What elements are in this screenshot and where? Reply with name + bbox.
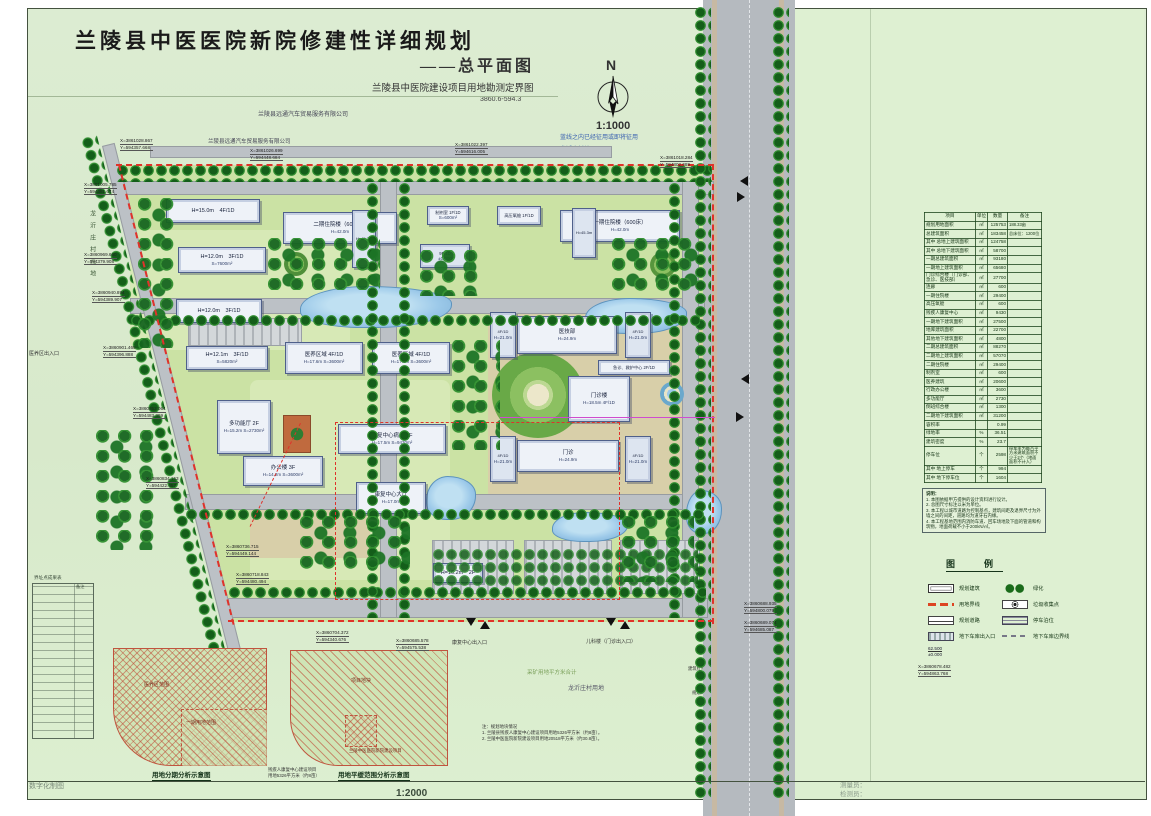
indicator-row: 总建筑面积 ㎡ 183458 总床位：1200位 [925,230,1042,239]
indicators-header-row: 项目 单位 数量 备注 [925,213,1042,222]
field-line [870,9,871,781]
legend-item: 规划建筑 [928,580,998,596]
coord-x: X=3861005.785 [84,182,117,189]
building-sub: H=15.2m S=2730m² [224,428,265,433]
survey-title: 兰陵县中医院建设项目用地勘测定界图 [372,84,534,94]
village-land-label: 龙沂庄村用地 [568,686,604,693]
indicator-unit: ㎡ [975,238,987,247]
indicator-qty: 183458 [988,230,1008,239]
indicator-note [1008,386,1042,395]
indicator-row: 停车位 个 2598 停车率为每百平方米建筑面积不少于2个（地面面积不计入） [925,447,1042,466]
building-label: 急诊、救护中心 2F/1D [613,365,655,370]
mine-land-label: 采矿用地平方米合计 [527,670,577,676]
indicator-unit: ㎡ [975,264,987,273]
indicator-unit: ㎡ [975,412,987,421]
indicator-item: 倒班综合楼 [925,404,976,413]
indicator-unit [975,421,987,430]
building-sub: H=17.6m S=3600m² [391,359,432,364]
building-sub: H=17.6m S=3600m² [304,359,345,364]
note-line: 3. 本工程以城市道路为控制基点，建筑间距及退界尺寸为外墙之间的间距，道路均为道… [926,508,1042,519]
entrance-label-pediatric: 儿科楼（门诊出入口） [586,640,636,646]
indicator-unit: ㎡ [975,247,987,256]
inset-left-title: 用地分期分析示意图 [152,772,211,781]
boundary-table-header: 备注 [76,585,84,590]
coord-x: X=3861018.284 [660,155,693,162]
indicator-qty: 29400 [988,292,1008,301]
indicator-qty: 0.99 [988,421,1008,430]
indicator-row: 容积率 0.99 [925,421,1042,430]
coord-y: Y=594483.399 [133,413,166,420]
coordinate-callout: X=3860736.715Y=594449.144 [226,544,259,557]
coord-y: Y=594381.674 [84,189,117,196]
entrance-arrow [620,616,630,629]
indicator-unit: ㎡ [975,343,987,352]
coord-x: X=3860852.064 [133,406,166,413]
indicator-row: 其中 地上停车 个 994 [925,465,1042,474]
coordinate-callout: X=3860704.372Y=594340.676 [316,630,349,643]
legend-label: 地下车库出入口 [959,633,995,640]
coord-y: Y=594480.494 [236,579,269,586]
indicator-item: 二期总建筑面积 [925,343,976,352]
inset-rehab-parcel [345,715,377,747]
indicator-row: 一期住院楼 ㎡ 29400 [925,292,1042,301]
plan-note-line: 1. 兰陵县残疾人康复中心建设项目用地5326平方米（约8亩）。 [482,730,622,736]
indicator-note [1008,404,1042,413]
boundary-east [712,164,714,624]
indicator-qty: 2730 [988,395,1008,404]
entrance-arrow [735,176,748,186]
indicator-row: 二期住院楼 ㎡ 29400 [925,361,1042,370]
north-label: N [606,58,616,73]
indicator-unit: ㎡ [975,326,987,335]
indicator-note [1008,369,1042,378]
coord-y: Y=594685.087 [744,627,777,634]
inset-label: 医养区范围 [144,683,169,689]
indicator-unit: ㎡ [975,352,987,361]
building-sub: S=600m² [439,215,457,220]
legend-swatch-icon [1002,600,1028,609]
legend-swatch-icon [1002,635,1028,637]
legend-item: 地下车库边界线 [1002,628,1082,644]
legend-swatch-icon [1002,584,1028,593]
coordinate-callout: X=3860689.074Y=594685.087 [744,620,777,633]
inset-right-title: 用地平缓范围分析示意图 [338,772,410,781]
coordinate-callout: X=3860718.843Y=594480.494 [236,572,269,585]
coord-y: Y=594800.079 [744,608,777,615]
indicator-note [1008,465,1042,474]
legend-swatch-icon [928,584,954,593]
coordinate-callout: X=3860852.064Y=594483.399 [133,406,166,419]
indicator-item: 医养建筑 [925,378,976,387]
building-sub: H=42.0m [331,229,349,234]
coord-y: Y=594616.005 [455,149,488,156]
legend-item: 规划道路 [928,612,998,628]
indicator-note [1008,421,1042,430]
indicator-qty: 20600 [988,378,1008,387]
indicator-row: 多功能厅 ㎡ 2730 [925,395,1042,404]
indicator-item: 其中 地上停车 [925,465,976,474]
indicator-note [1008,238,1042,247]
indicator-row: 其中 总地下建筑面积 ㎡ 58700 [925,247,1042,256]
legend-label: 用地界线 [959,601,980,608]
indicator-item: 其中 总地下建筑面积 [925,247,976,256]
inset-phasing-diagram: 医养区范围 一期用地范围 [113,648,267,766]
tree-row [694,6,711,798]
coordinate-callout: X=3860901.469Y=594396.888 [103,345,136,358]
plan-note-line: 2. 兰陵中医医院新院建设项目用地20518平方米（约30.8亩）。 [482,736,622,742]
building-label: 多功能厅 2F [229,421,259,428]
legend-item: 垃圾收集点 [1002,596,1082,612]
indicator-note [1008,283,1042,292]
coord-y: Y=594448.684 [250,155,283,162]
indicator-row: 连廊 ㎡ 600 [925,283,1042,292]
entrance-arrow [736,412,749,422]
indicator-item: 停车位 [925,447,976,466]
tree-cluster [96,430,154,550]
coord-x: X=3860678.482 [918,664,951,671]
indicator-item: 一期地下建筑面积 [925,318,976,327]
indicator-row: 规划用地面积 ㎡ 125753 188.33亩 [925,221,1042,230]
indicator-note [1008,255,1042,264]
indicator-qty: 27500 [988,318,1008,327]
boundary-top [116,164,714,166]
indicator-item: 连廊 [925,283,976,292]
indicator-note [1008,318,1042,327]
indicator-qty: 65680 [988,264,1008,273]
indicator-row: 制剂室 ㎡ 600 [925,369,1042,378]
indicator-note [1008,264,1042,273]
indicator-row: 门诊综合楼（门诊部、急诊、医技部） ㎡ 27700 [925,273,1042,284]
indicator-unit: ㎡ [975,309,987,318]
indicator-qty: 600 [988,369,1008,378]
cad-credit: 数字化制图 [29,783,64,791]
coord-y: Y=594379.908 [84,259,117,266]
col-unit: 单位 [975,213,987,222]
building-emergency: 急诊、救护中心 2F/1D [598,360,670,375]
indicator-note [1008,429,1042,438]
inset-leader-label2: 用地5326平方米（约8亩） [268,774,320,779]
indicator-unit: ㎡ [975,255,987,264]
magenta-line [500,417,715,418]
building-dorm-2: H=12.0m 3F/1DS=7600m² [178,247,266,273]
coordinate-callout: X=3861005.785Y=594381.674 [84,182,117,195]
coord-x: X=3860940.894 [92,290,125,297]
coord-y: Y=594802.689 [660,162,693,169]
indicator-unit: ㎡ [975,292,987,301]
page-subtitle: ——总平面图 [420,58,534,76]
building-eldercare-1: 医养区域 4F/1DH=17.6m S=3600m² [285,342,363,374]
indicator-row: 医养建筑 ㎡ 20600 [925,378,1042,387]
indicator-qty: 2598 [988,447,1008,466]
indicator-item: 规划用地面积 [925,221,976,230]
indicator-note [1008,247,1042,256]
col-note: 备注 [1008,213,1042,222]
indicator-unit: ㎡ [975,300,987,309]
indicator-unit: ㎡ [975,221,987,230]
indicator-qty: 1604 [988,474,1008,483]
col-qty: 数量 [988,213,1008,222]
page-title: 兰陵县中医医院新院修建性详细规划 [75,30,475,53]
building-label: H=15.0m 4F/1D [192,208,235,215]
site-plan-sheet: H=15.0m 4F/1D H=12.0m 3F/1DS=7600m² H=12… [0,0,1151,816]
indicator-item: 行政办公楼 [925,386,976,395]
coord-y: Y=594396.888 [103,352,136,359]
inset-label: 兰陵中医医院新院建设项目 [349,749,402,754]
building-outpatient-hall: 门诊楼H=18.5m 4F/1D [568,376,630,422]
coord-x: X=3860901.469 [103,345,136,352]
indicator-note [1008,361,1042,370]
indicator-item: 绿地率 [925,429,976,438]
indicator-qty: 124758 [988,238,1008,247]
indicator-unit: 个 [975,447,987,466]
legend-label: 规划道路 [959,617,980,624]
plan-note: 注：规划地块情况 1. 兰陵县残疾人康复中心建设项目用地5326平方米（约8亩）… [482,724,622,742]
coordinate-callout: X=3860685.578Y=594575.538 [396,638,429,651]
indicator-row: 高压氧舱 ㎡ 600 [925,300,1042,309]
coord-x: X=3861028.867 [120,138,153,145]
survey-code: 3860.6-594.3 [480,96,521,104]
faint-line [28,96,558,97]
indicator-note [1008,326,1042,335]
indicator-row: 地库建筑面积 ㎡ 22700 [925,326,1042,335]
coord-x: X=3860685.578 [396,638,429,645]
indicator-qty: 93180 [988,255,1008,264]
indicator-item: 二期地下建筑面积 [925,412,976,421]
legend-col-1: 规划建筑 用地界线 规划道路 地下车库出入口 [928,580,998,644]
entrance-arrow [466,618,476,631]
legend-label: 垃圾收集点 [1033,601,1059,608]
building-label: 办公楼 3F [271,465,295,472]
indicator-unit: ㎡ [975,361,987,370]
building-sub: H=24.9m [558,336,576,341]
indicator-qty: 31200 [988,412,1008,421]
coordinate-callout: X=3861018.284Y=594802.689 [660,155,693,168]
elevation-symbol: 62.500 ±0.000 [928,646,942,657]
indicator-row: 倒班综合楼 ㎡ 1300 [925,404,1042,413]
indicator-qty: 29400 [988,361,1008,370]
scale-label: 1:1000 [596,120,630,132]
building-ward-phase1-tower: H=45.3m [572,208,596,258]
building-label: 一期住院楼（600床） [593,220,646,227]
indicator-row: 残疾人康复中心 ㎡ 9430 [925,309,1042,318]
inset-scale: 1:2000 [396,788,427,799]
coordinate-callout: X=3861022.397Y=594616.005 [455,142,488,155]
building-dorm-1: H=15.0m 4F/1D [166,199,260,223]
coordinate-callout: X=3860969.660Y=594379.908 [84,252,117,265]
indicator-item: 残疾人康复中心 [925,309,976,318]
indicator-note [1008,378,1042,387]
tree-row [772,6,789,798]
tree-cluster [268,238,380,290]
indicator-unit: ㎡ [975,318,987,327]
building-label: 高压氧舱 1F/1D [504,213,533,218]
tree-row [130,314,700,326]
building-label: 医技部 [559,329,576,336]
elevation-bottom: ±0.000 [928,652,942,657]
coordinate-callout: X=3860834.153Y=594422.457 [146,476,179,489]
road-centerline [749,0,750,816]
coord-y: Y=594575.538 [396,645,429,652]
indicator-unit: % [975,429,987,438]
coord-x: X=3860718.843 [236,572,269,579]
inset-flat-range-diagram: 项目地块 兰陵中医医院新院建设项目 [290,650,448,766]
rehab-parcel-boundary [335,422,620,600]
coord-x: X=3861026.699 [250,148,283,155]
indicator-item: 二期住院楼 [925,361,976,370]
indicator-unit: ㎡ [975,386,987,395]
indicator-qty: 3600 [988,386,1008,395]
coord-y: Y=594422.457 [146,483,179,490]
building-outpatient-wing-east: 4F/1DH=21.0m [625,436,651,482]
legend-swatch-icon [928,632,954,641]
indicator-note [1008,309,1042,318]
indicator-row: 绿地率 % 36.51 [925,429,1042,438]
indicator-note: 停车率为每百平方米建筑面积不少于2个（地面面积不计入） [1008,447,1042,466]
company-label: 兰陵县远通汽车贸易服务有限公司 [258,112,348,119]
indicator-qty: 600 [988,300,1008,309]
indicator-note [1008,292,1042,301]
legend-item: 绿化 [1002,580,1082,596]
coord-x: X=3860736.715 [226,544,259,551]
indicator-item: 其中 地下停车位 [925,474,976,483]
indicator-item: 高压氧舱 [925,300,976,309]
legend-item: 停车泊位 [1002,612,1082,628]
indicator-unit: ㎡ [975,273,987,284]
indicator-item: 总建筑面积 [925,230,976,239]
indicator-unit: ㎡ [975,335,987,344]
indicator-qty: 125753 [988,221,1008,230]
indicators-table: 项目 单位 数量 备注 规划用地面积 ㎡ 125753 188.33亩 总建筑面… [924,212,1042,483]
indicator-note [1008,335,1042,344]
indicator-unit: ㎡ [975,230,987,239]
building-sub: H=14.2m S=3600m² [263,472,304,477]
indicator-unit: ㎡ [975,378,987,387]
tree-cluster [622,516,694,582]
indicator-row: 其他地下建筑面积 ㎡ 4800 [925,335,1042,344]
col-item: 项目 [925,213,976,222]
coordinate-callout: X=3860688.935Y=594800.079 [744,601,777,614]
building-label: 门诊楼 [591,393,608,400]
coord-x: X=3860688.935 [744,601,777,608]
legend-swatch-icon [928,616,954,625]
coord-y: Y=594863.768 [918,671,951,678]
indicator-row: 二期地上建筑面积 ㎡ 57070 [925,352,1042,361]
building-label: H=12.1m 3F/1D [206,352,249,359]
building-sub: H=18.5m 4F/1D [583,400,615,405]
building-label: H=12.0m 3F/1D [201,254,244,261]
frame-bottom-line [27,781,1145,782]
legend-col-2: 绿化 垃圾收集点 停车泊位 地下车库边界线 [1002,580,1082,644]
coordinate-callout: X=3860940.894Y=594389.907 [92,290,125,303]
indicator-note [1008,343,1042,352]
building-sub: S=5820m² [217,359,238,364]
corner-coordinate: X=3860678.482 Y=594863.768 [918,664,951,677]
tree-row [116,164,712,182]
tree-cluster [612,238,700,294]
indicator-row: 其中 总地上建筑面积 ㎡ 124758 [925,238,1042,247]
indicator-note [1008,273,1042,284]
coord-x: X=3860969.660 [84,252,117,259]
indicator-row: 其中 地下停车位 个 1604 [925,474,1042,483]
indicator-note: 188.33亩 [1008,221,1042,230]
coordinate-callout: X=3861028.867Y=594357.668 [120,138,153,151]
coordinate-callout: X=3861026.699Y=594448.684 [250,148,283,161]
legend-label: 绿化 [1033,585,1043,592]
indicator-note [1008,395,1042,404]
indicator-qty: 57070 [988,352,1008,361]
coord-y: Y=594449.144 [226,551,259,558]
building-label: H=45.3m [576,231,592,236]
indicator-row: 二期总建筑面积 ㎡ 88270 [925,343,1042,352]
legend-item: 用地界线 [928,596,998,612]
legend-title: 图 例 [946,560,1003,572]
indicator-qty: 27700 [988,273,1008,284]
surveyor-label: 测量员： [840,782,866,789]
legend-label: 停车泊位 [1033,617,1054,624]
indicator-item: 其他地下建筑面积 [925,335,976,344]
indicator-item: 建筑密度 [925,438,976,447]
indicator-item: 一期住院楼 [925,292,976,301]
coord-x: X=3861022.397 [455,142,488,149]
indicator-note [1008,352,1042,361]
entrance-arrow [736,374,749,384]
indicator-qty: 600 [988,283,1008,292]
legend-label: 地下车库边界线 [1033,633,1069,640]
indicator-unit: ㎡ [975,404,987,413]
company-label: 兰陵县远通汽车贸易服务有限公司 [208,139,291,145]
indicator-qty: 36.51 [988,429,1008,438]
building-label: 医养区域 4F/1D [305,352,344,359]
indicator-qty: 22700 [988,326,1008,335]
building-multifunction-hall: 多功能厅 2FH=15.2m S=2730m² [217,400,271,454]
legend-label: 规划建筑 [959,585,980,592]
indicator-item: 制剂室 [925,369,976,378]
legend-swatch-icon [1002,616,1028,625]
coord-x: X=3860704.372 [316,630,349,637]
eldercare-exit-label: 医养区出入口 [29,352,59,358]
boundary-table-title: 界址点成果表 [34,575,62,580]
indicator-note [1008,300,1042,309]
indicator-row: 行政办公楼 ㎡ 3600 [925,386,1042,395]
indicator-qty: 58700 [988,247,1008,256]
compass-icon [590,74,636,120]
indicator-qty: 4800 [988,335,1008,344]
building-pharmacy: 制剂室 1F/1DS=600m² [427,206,469,225]
indicator-item: 一期总建筑面积 [925,255,976,264]
indicator-row: 二期地下建筑面积 ㎡ 31200 [925,412,1042,421]
indicator-item: 其中 总地上建筑面积 [925,238,976,247]
indicator-qty: 1300 [988,404,1008,413]
coord-y: Y=594389.907 [92,297,125,304]
legend-swatch-icon [928,603,954,606]
coord-y: Y=594340.676 [316,637,349,644]
inset-label: 一期用地范围 [186,721,216,727]
indicator-row: 一期总建筑面积 ㎡ 93180 [925,255,1042,264]
indicator-unit: ㎡ [975,283,987,292]
indicator-note: 总床位：1200位 [1008,230,1042,239]
indicator-item: 二期地上建筑面积 [925,352,976,361]
indicator-qty: 994 [988,465,1008,474]
building-sub: H=21.0m [629,459,647,464]
inset-label: 项目地块 [351,679,371,685]
indicator-unit: ㎡ [975,369,987,378]
building-office: 办公楼 3FH=14.2m S=3600m² [243,456,323,486]
indicator-note [1008,412,1042,421]
building-sub: H=21.0m [629,335,647,340]
coord-x: X=3860834.153 [146,476,179,483]
indicator-item: 多功能厅 [925,395,976,404]
entrance-arrow [480,616,490,629]
